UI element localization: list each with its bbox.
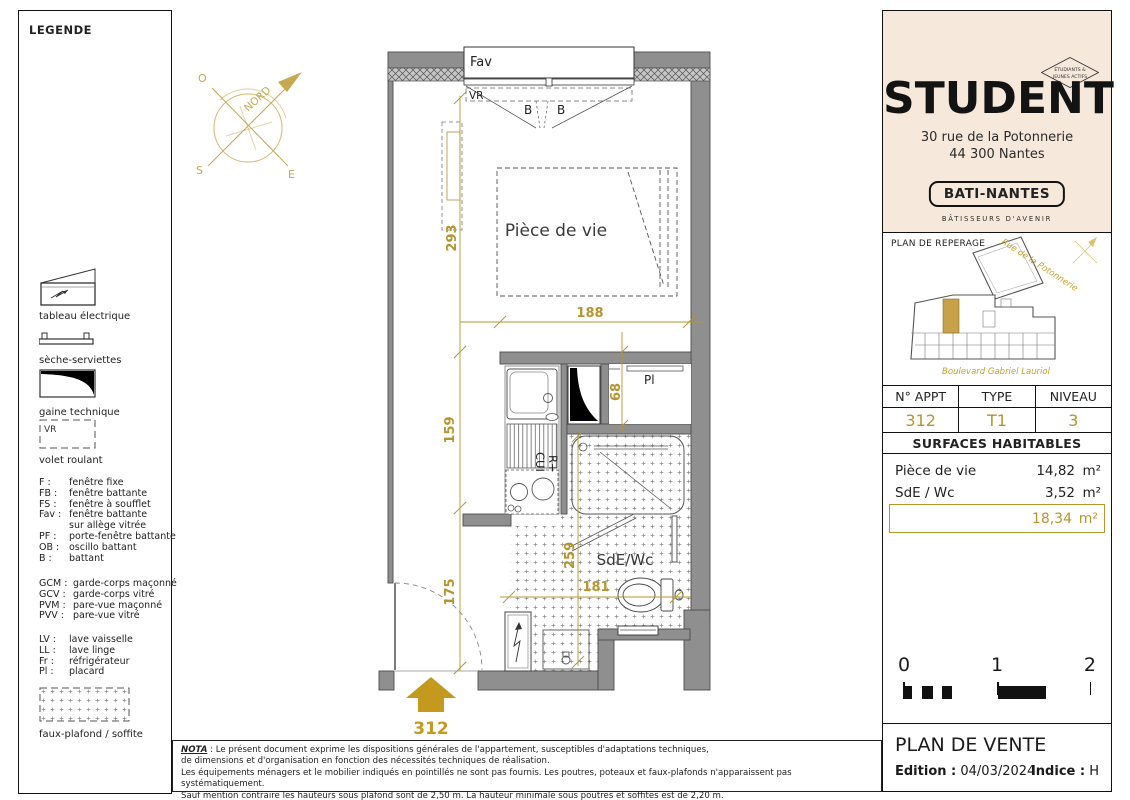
svg-text:B: B (557, 103, 565, 117)
apartment-info-table: N° APPT 312 TYPE T1 NIVEAU 3 (883, 386, 1111, 433)
svg-text:R+: R+ (546, 455, 560, 473)
living-room-label: Pièce de vie (505, 221, 607, 241)
legend-panel: LEGENDE tableau électrique sèche-serviet… (18, 10, 172, 794)
radiator (447, 132, 460, 200)
technical-duct (568, 366, 600, 424)
legend-label-towel-dryer: sèche-serviettes (39, 355, 122, 366)
surface-row: Pièce de vie 14,82 m² (895, 463, 1101, 479)
legend-equipment-abbreviations: LV :lave vaisselle LL :lave linge Fr :ré… (39, 635, 133, 678)
apartment-number-arrow-label: 312 (413, 719, 449, 739)
svg-text:Fav: Fav (470, 55, 492, 70)
svg-text:Boulevard Gabriel Lauriol: Boulevard Gabriel Lauriol (942, 367, 1051, 377)
legend-guard-abbreviations: GCM :garde-corps maçonné GCV :garde-corp… (39, 579, 177, 622)
surface-row: SdE / Wc 3,52 m² (895, 485, 1101, 501)
surfaces-block: Pièce de vie 14,82 m² SdE / Wc 3,52 m² 1… (883, 454, 1111, 724)
false-ceiling-icon (39, 687, 131, 723)
svg-text:ÉTUDIANTS &: ÉTUDIANTS & (1054, 65, 1086, 73)
svg-text:S: S (196, 164, 203, 177)
svg-text:VR: VR (469, 90, 483, 102)
surface-total: 18,34 m² (889, 504, 1105, 533)
legend-label-roller-shutter: volet roulant (39, 455, 103, 466)
svg-text:Pl: Pl (644, 373, 655, 387)
dim-293: 293 (445, 224, 460, 251)
nota-box: NOTA : Le présent document exprime les d… (172, 740, 882, 792)
legend-label-technical-duct: gaine technique (39, 407, 120, 418)
svg-text:O: O (198, 72, 207, 85)
legend-title: LEGENDE (29, 23, 92, 37)
svg-text:VR: VR (44, 425, 56, 435)
value-type: T1 (959, 408, 1034, 432)
north-arrow (278, 72, 302, 92)
wardrobe-outline (442, 122, 462, 230)
brand-block: ÉTUDIANTS & JEUNES ACTIFS STUDENT 30 rue… (883, 11, 1111, 233)
highlighted-unit (943, 299, 959, 333)
svg-text:CUI: CUI (533, 452, 547, 472)
technical-duct-icon (39, 369, 97, 399)
value-appt: 312 (883, 408, 958, 432)
legend-label-false-ceiling: faux-plafond / soffite (39, 729, 143, 740)
bottom-window (618, 626, 658, 635)
window-fav: Fav VR B B (464, 47, 634, 128)
svg-text:B: B (524, 103, 532, 117)
header-appt: N° APPT (883, 386, 958, 408)
dim-188: 188 (576, 306, 603, 321)
surfaces-title: SURFACES HABITABLES (883, 433, 1111, 454)
entry-door (395, 583, 482, 671)
mini-compass (1073, 237, 1097, 263)
svg-text:E: E (288, 168, 295, 180)
kitchenette: R+ CUI (505, 366, 560, 514)
footer-cartouche: PLAN DE VENTE Edition : 04/03/2024 Indic… (883, 724, 1111, 792)
dim-259: 259 (563, 542, 578, 569)
header-niveau: NIVEAU (1036, 386, 1111, 408)
floor-plan: Fav VR B B R+ CUI (365, 42, 725, 742)
title-block: ÉTUDIANTS & JEUNES ACTIFS STUDENT 30 rue… (882, 10, 1112, 792)
scale-bar: 0 1 2 (903, 654, 1091, 710)
edition-row: Edition : 04/03/2024 Indice : H (895, 764, 1099, 779)
toilet (618, 578, 683, 612)
dim-181: 181 (582, 580, 609, 595)
bathroom-label: SdE/Wc (597, 551, 654, 569)
document-title: PLAN DE VENTE (895, 734, 1046, 756)
brand-name: STUDENT (883, 73, 1111, 124)
dim-159: 159 (443, 416, 458, 443)
electrical-cabinet (505, 612, 531, 671)
header-type: TYPE (959, 386, 1034, 408)
roller-shutter-icon: VR (39, 419, 97, 450)
value-niveau: 3 (1036, 408, 1111, 432)
compass-rose: NORD O S E (190, 66, 320, 180)
brand-address: 30 rue de la Potonnerie 44 300 Nantes (883, 129, 1111, 163)
builder-logo: BATI-NANTES (929, 181, 1065, 207)
towel-dryer-icon (39, 331, 95, 347)
entry-arrow (406, 677, 456, 712)
plan-de-vente-sheet: LEGENDE tableau électrique sèche-serviet… (0, 0, 1130, 800)
towel-dryer (672, 516, 677, 562)
location-plan-map: Rue de la Potonnerie Boulevard Gabriel L… (883, 233, 1109, 380)
location-plan: PLAN DE REPERAGE Rue de la Potonnerie Bo… (883, 233, 1111, 386)
electrical-panel-icon (39, 267, 97, 307)
legend-label-electrical-panel: tableau électrique (39, 311, 130, 322)
legend-window-abbreviations: F :fenêtre fixe FB :fenêtre battante FS … (39, 478, 176, 564)
builder-tagline: BÂTISSEURS D'AVENIR (883, 215, 1111, 223)
dim-175: 175 (443, 578, 458, 605)
dim-68: 68 (609, 383, 624, 401)
